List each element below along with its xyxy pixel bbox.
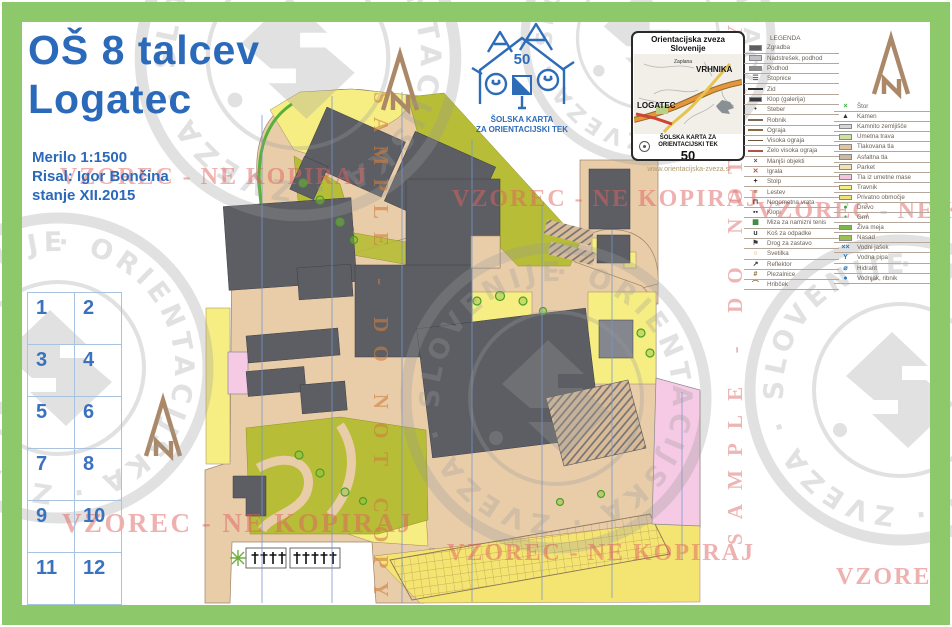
- legend-symbol-icon: [744, 150, 767, 152]
- legend-label: Stopnice: [767, 75, 791, 82]
- legend-label: Ograja: [767, 127, 786, 134]
- legend-symbol-icon: [744, 45, 767, 51]
- legend-label: Lestev: [767, 189, 785, 196]
- legend-item: Kamnito zemljišče: [834, 122, 946, 132]
- legend-symbol-icon: ✕: [744, 168, 767, 175]
- legend-symbol-icon: ☰: [744, 75, 767, 82]
- legend-label: Nasad: [857, 234, 875, 241]
- legend-label: Visoka ograja: [767, 137, 804, 144]
- legend-symbol-icon: [834, 154, 857, 160]
- legend-item: Nadstrešek, podhod: [744, 54, 839, 64]
- logo-caption2: ZA ORIENTACIJSKI TEK: [458, 125, 586, 135]
- grid-cell: 3: [27, 344, 74, 396]
- legend-label: Plezalnice: [767, 271, 795, 278]
- map-info: Merilo 1:1500 Risal: Igor Bončina stanje…: [32, 148, 169, 205]
- legend-column-left: LEGENDA ZgradbaNadstrešek, podhodPodhod☰…: [744, 34, 839, 290]
- legend-item: ✕Igrala: [744, 167, 839, 177]
- legend-symbol-icon: ⌀: [834, 265, 857, 272]
- legend-label: Zgradba: [767, 44, 790, 51]
- legend-symbol-icon: +: [744, 178, 767, 185]
- svg-text:VZOREC - NE KOPIRAJ: VZOREC - NE KOPIRAJ: [836, 564, 952, 590]
- legend-symbol-icon: [834, 225, 857, 231]
- legend-label: Reflektor: [767, 261, 792, 268]
- inset-label-logatec: LOGATEC: [637, 101, 676, 110]
- legend-label: Štor: [857, 103, 868, 110]
- legend-label: Tla iz umetne mase: [857, 174, 911, 181]
- inset-label-zaplana: Zaplana: [674, 59, 692, 65]
- legend-label: Tlakovana tla: [857, 143, 894, 150]
- legend-label: Klopi: [767, 209, 781, 216]
- legend-label: Drevo: [857, 204, 874, 211]
- legend-symbol-icon: [744, 140, 767, 142]
- legend-label: Hidrant: [857, 265, 877, 272]
- legend-label: Manjši objekti: [767, 158, 805, 165]
- legend-item: •Grm: [834, 213, 946, 223]
- legend-item: Zid: [744, 84, 839, 94]
- legend-item: Tlakovana tla: [834, 142, 946, 152]
- legend-symbol-icon: ▦: [744, 219, 767, 226]
- legend-label: Stolp: [767, 178, 781, 185]
- inset-title: Orientacijska zveza Slovenije: [633, 35, 743, 53]
- inset-label-vrhnika: VRHNIKA: [696, 65, 733, 74]
- legend-label: Vodni jašek: [857, 244, 889, 251]
- legend-item: Tla iz umetne mase: [834, 173, 946, 183]
- legend-label: Klop (galerija): [767, 96, 805, 103]
- grid-cell: 5: [27, 396, 74, 448]
- page: { "title": {"line1": "OŠ 8 talcev", "lin…: [0, 0, 952, 627]
- legend-item: ⌒Hribček: [744, 280, 839, 290]
- legend-item: +Stolp: [744, 177, 839, 187]
- logo-caption1: ŠOLSKA KARTA: [458, 115, 586, 125]
- legend-label: Zid: [767, 86, 776, 93]
- inset-road-map: Zaplana VRHNIKA LOGATEC: [634, 54, 742, 134]
- legend-symbol-icon: [834, 144, 857, 150]
- grid-cell: 8: [74, 448, 121, 500]
- legend-symbol-icon: ⊓: [744, 199, 767, 206]
- inset-emblem-icon: [639, 141, 650, 152]
- legend-symbol-icon: ⚑: [744, 240, 767, 247]
- legend-item: Privatno območje: [834, 193, 946, 203]
- grid-cell: 6: [74, 396, 121, 448]
- legend-symbol-icon: •: [834, 214, 857, 221]
- grid-cell: 4: [74, 344, 121, 396]
- legend-item: YVodna pipa: [834, 253, 946, 263]
- legend-label: Miza za namizni tenis: [767, 219, 826, 226]
- legend-item: Visoka ograja: [744, 136, 839, 146]
- inset-caption1: ŠOLSKA KARTA ZA: [633, 135, 743, 142]
- legend-item: Parket: [834, 163, 946, 173]
- legend-label: Koš za odpadke: [767, 230, 811, 237]
- legend-item: #Plezalnice: [744, 270, 839, 280]
- legend-column-right: ×Štor▲KamenKamnito zemljiščeUmetna trava…: [834, 102, 946, 284]
- legend-label: Travnik: [857, 184, 877, 191]
- logo-number: 50: [514, 51, 531, 68]
- map-scale: Merilo 1:1500: [32, 148, 169, 167]
- legend-symbol-icon: Y: [834, 254, 857, 261]
- legend-symbol-icon: ○: [744, 250, 767, 257]
- legend-item: Robnik: [744, 115, 839, 125]
- legend-symbol-icon: #: [744, 271, 767, 278]
- bike-racks: [230, 548, 340, 568]
- legend-symbol-icon: ××: [834, 244, 857, 251]
- legend-item: Živa meja: [834, 223, 946, 233]
- legend-item: ▦Miza za namizni tenis: [744, 218, 839, 228]
- legend-item: ●Vodnjak, ribnik: [834, 274, 946, 284]
- legend-label: Grm: [857, 214, 869, 221]
- legend-label: Hribček: [767, 281, 788, 288]
- legend-item: Zgradba: [744, 43, 839, 53]
- legend-label: Nogometna vrata: [767, 199, 814, 206]
- legend-label: Steber: [767, 106, 785, 113]
- legend-item: Klop (galerija): [744, 95, 839, 105]
- anniversary-logo: 50 ŠOLSKA KARTA ZA ORIENTACIJSKI TEK: [458, 18, 586, 134]
- legend-symbol-icon: ≡: [744, 189, 767, 196]
- svg-text:VZOREC - NE KOPIRAJ: VZOREC - NE KOPIRAJ: [452, 186, 760, 212]
- legend-symbol-icon: [744, 129, 767, 131]
- legend-symbol-icon: [744, 55, 767, 61]
- legend-item: ×Štor: [834, 102, 946, 112]
- legend-item: ⌀Hidrant: [834, 264, 946, 274]
- legend-symbol-icon: ↗: [744, 261, 767, 268]
- grid-cell: 12: [74, 552, 121, 604]
- legend-item: ⊓Nogometna vrata: [744, 198, 839, 208]
- legend-item: Ograja: [744, 126, 839, 136]
- legend-item: •Steber: [744, 105, 839, 115]
- legend-label: Asfaltna tla: [857, 154, 888, 161]
- legend-item: ×Manjši objekti: [744, 157, 839, 167]
- svg-text:VZOREC - NE KOPIRAJ: VZOREC - NE KOPIRAJ: [447, 540, 755, 566]
- legend-label: Nadstrešek, podhod: [767, 55, 822, 62]
- legend-item: Podhod: [744, 64, 839, 74]
- legend-item: ○Svetilka: [744, 249, 839, 259]
- legend-label: Zelo visoka ograja: [767, 147, 817, 154]
- legend-label: Drog za zastavo: [767, 240, 812, 247]
- control-number-grid: 123456789101112: [27, 292, 122, 605]
- grid-cell: 2: [74, 292, 121, 344]
- legend-symbol-icon: [834, 195, 857, 201]
- legend-label: Kamnito zemljišče: [857, 123, 907, 130]
- legend-label: Parket: [857, 164, 875, 171]
- map-author: Risal: Igor Bončina: [32, 167, 169, 186]
- anniversary-logo-icon: 50: [458, 18, 586, 110]
- map-status: stanje XII.2015: [32, 186, 169, 205]
- legend-item: ≡Lestev: [744, 187, 839, 197]
- legend-symbol-icon: [744, 66, 767, 72]
- legend-symbol-icon: ×: [834, 103, 857, 110]
- legend-symbol-icon: ×: [744, 158, 767, 165]
- legend-symbol-icon: [834, 174, 857, 180]
- legend-item: Asfaltna tla: [834, 152, 946, 162]
- legend-symbol-icon: [834, 164, 857, 170]
- legend-item: ××Vodni jašek: [834, 243, 946, 253]
- legend-symbol-icon: [744, 88, 767, 90]
- grid-cell: 11: [27, 552, 74, 604]
- legend-symbol-icon: [834, 124, 857, 130]
- legend-label: Vodna pipa: [857, 254, 888, 261]
- grid-cell: 10: [74, 500, 121, 552]
- legend-symbol-icon: ▲: [834, 113, 857, 120]
- legend-item: uKoš za odpadke: [744, 229, 839, 239]
- legend-label: Igrala: [767, 168, 782, 175]
- legend-label: Kamen: [857, 113, 877, 120]
- title-line2: Logatec: [28, 75, 260, 124]
- legend-label: Robnik: [767, 117, 786, 124]
- legend-item: Umetna trava: [834, 132, 946, 142]
- legend-item: ☰Stopnice: [744, 74, 839, 84]
- inset-url: www.orientacijska-zveza.si: [633, 166, 745, 173]
- legend-symbol-icon: [834, 134, 857, 140]
- legend-item: Zelo visoka ograja: [744, 146, 839, 156]
- title-line1: OŠ 8 talcev: [28, 26, 260, 75]
- inset-locator-map: Orientacijska zveza Slovenije Zaplana VR…: [631, 31, 745, 161]
- legend-label: Živa meja: [857, 224, 884, 231]
- legend-item: ↗Reflektor: [744, 260, 839, 270]
- legend-symbol-icon: [834, 235, 857, 241]
- grid-cell: 9: [27, 500, 74, 552]
- legend-symbol-icon: ●: [834, 204, 857, 211]
- legend-symbol-icon: u: [744, 230, 767, 237]
- legend-label: Umetna trava: [857, 133, 894, 140]
- legend-symbol-icon: ●: [834, 275, 857, 282]
- legend-symbol-icon: •: [744, 106, 767, 113]
- legend-symbol-icon: ▪▪: [744, 209, 767, 216]
- legend-item: Travnik: [834, 183, 946, 193]
- legend-item: ▲Kamen: [834, 112, 946, 122]
- legend-item: ●Drevo: [834, 203, 946, 213]
- legend-symbol-icon: ⌒: [744, 281, 767, 288]
- legend-symbol-icon: [834, 185, 857, 191]
- grid-cell: 7: [27, 448, 74, 500]
- legend-symbol-icon: [744, 97, 767, 103]
- legend-label: Podhod: [767, 65, 788, 72]
- inset-number: 50: [633, 149, 743, 161]
- legend-header: LEGENDA: [744, 34, 839, 43]
- legend-label: Svetilka: [767, 250, 789, 257]
- legend-item: ▪▪Klopi: [744, 208, 839, 218]
- legend-label: Privatno območje: [857, 194, 905, 201]
- legend-item: ⚑Drog za zastavo: [744, 239, 839, 249]
- grid-cell: 1: [27, 292, 74, 344]
- legend-item: Nasad: [834, 233, 946, 243]
- legend-symbol-icon: [744, 119, 767, 121]
- page-title: OŠ 8 talcev Logatec: [28, 26, 260, 124]
- legend-label: Vodnjak, ribnik: [857, 275, 897, 282]
